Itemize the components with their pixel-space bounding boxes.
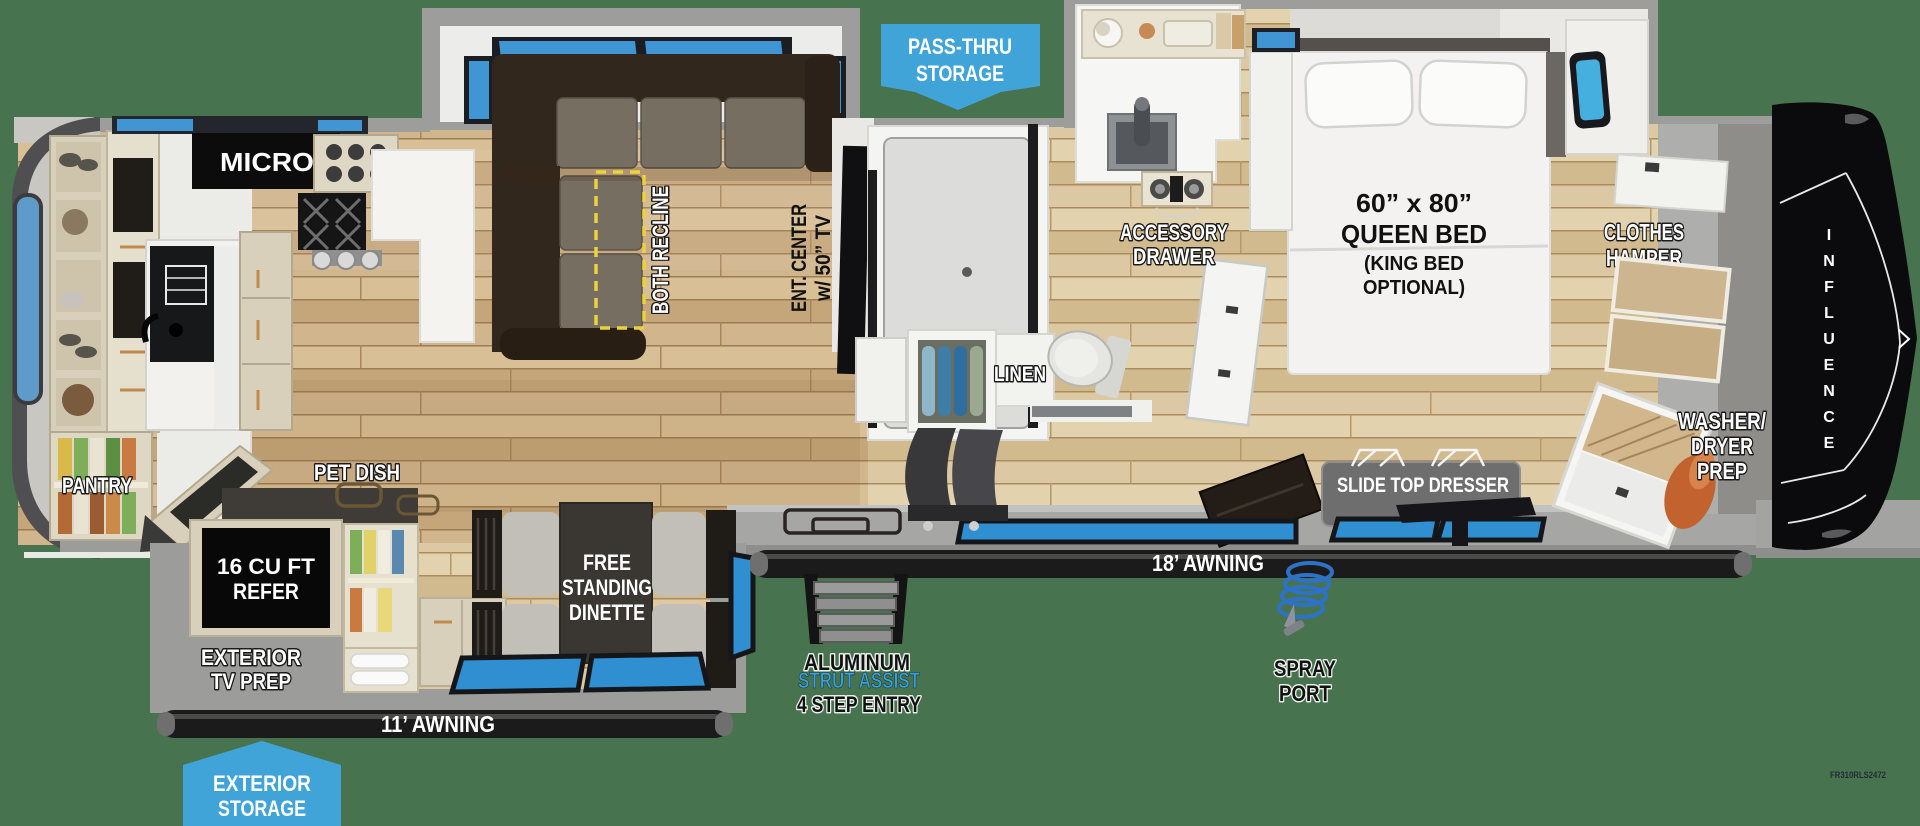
svg-text:L: L [1824, 305, 1834, 322]
svg-text:MICRO: MICRO [220, 147, 314, 177]
svg-text:N: N [1823, 383, 1835, 400]
svg-text:60” x 80”: 60” x 80” [1356, 188, 1472, 218]
svg-text:DRYER: DRYER [1691, 433, 1753, 459]
svg-text:C: C [1823, 409, 1835, 426]
svg-text:EXTERIOR: EXTERIOR [201, 645, 301, 670]
svg-text:SPRAY: SPRAY [1274, 656, 1336, 681]
svg-text:PASS-THRU: PASS-THRU [908, 34, 1012, 59]
svg-text:F: F [1824, 279, 1834, 296]
svg-text:N: N [1823, 253, 1835, 270]
svg-text:LINEN: LINEN [994, 363, 1046, 386]
svg-text:PORT: PORT [1279, 681, 1331, 706]
svg-text:BOTH RECLINE: BOTH RECLINE [648, 186, 673, 314]
svg-text:11’ AWNING: 11’ AWNING [381, 711, 495, 737]
svg-text:CLOTHES: CLOTHES [1604, 219, 1684, 245]
svg-text:FR310RLS2472: FR310RLS2472 [1830, 770, 1886, 780]
svg-text:16 CU FT: 16 CU FT [217, 554, 316, 579]
svg-text:18’ AWNING: 18’ AWNING [1152, 550, 1264, 576]
svg-text:FREE: FREE [583, 550, 631, 575]
svg-text:STORAGE: STORAGE [916, 61, 1004, 86]
svg-text:DINETTE: DINETTE [569, 600, 645, 625]
svg-text:E: E [1824, 357, 1835, 374]
svg-text:(KING BED: (KING BED [1364, 253, 1464, 275]
svg-text:I: I [1827, 227, 1831, 244]
svg-text:ACCESSORY: ACCESSORY [1120, 220, 1228, 245]
svg-text:EXTERIOR: EXTERIOR [213, 771, 311, 796]
svg-text:w/ 50” TV: w/ 50” TV [812, 215, 835, 302]
svg-text:STRUT ASSIST: STRUT ASSIST [798, 668, 920, 693]
svg-text:TV PREP: TV PREP [211, 669, 291, 694]
svg-text:PANTRY: PANTRY [62, 473, 132, 498]
svg-text:PET DISH: PET DISH [314, 460, 400, 485]
svg-text:DRAWER: DRAWER [1133, 244, 1215, 269]
svg-text:4 STEP ENTRY: 4 STEP ENTRY [797, 692, 921, 717]
svg-text:SLIDE TOP DRESSER: SLIDE TOP DRESSER [1337, 474, 1509, 497]
svg-text:REFER: REFER [233, 579, 299, 604]
svg-text:WASHER/: WASHER/ [1678, 408, 1766, 434]
svg-text:OPTIONAL): OPTIONAL) [1363, 277, 1465, 299]
svg-text:STORAGE: STORAGE [218, 796, 306, 821]
svg-text:QUEEN BED: QUEEN BED [1341, 219, 1487, 249]
svg-text:STANDING: STANDING [562, 575, 652, 600]
svg-text:ENT. CENTER: ENT. CENTER [788, 204, 811, 312]
svg-text:PREP: PREP [1697, 458, 1747, 484]
svg-text:E: E [1824, 435, 1835, 452]
svg-text:U: U [1823, 331, 1835, 348]
